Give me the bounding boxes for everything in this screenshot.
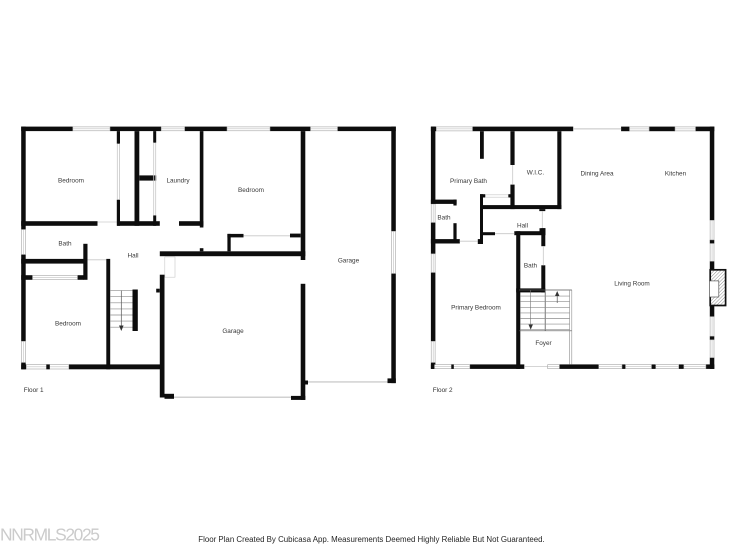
svg-text:Hall: Hall <box>127 253 138 260</box>
svg-text:Bedroom: Bedroom <box>238 187 264 194</box>
svg-text:Hall: Hall <box>517 223 528 230</box>
svg-text:Foyer: Foyer <box>535 340 552 347</box>
svg-text:Bedroom: Bedroom <box>58 178 84 185</box>
svg-text:Floor 1: Floor 1 <box>24 387 44 394</box>
svg-text:Bath: Bath <box>437 215 451 222</box>
svg-text:Laundry: Laundry <box>166 178 190 185</box>
svg-text:W.I.C.: W.I.C. <box>527 170 545 177</box>
svg-text:Dining Area: Dining Area <box>580 171 613 178</box>
svg-text:Floor Plan Created By Cubicasa: Floor Plan Created By Cubicasa App. Meas… <box>198 535 545 544</box>
svg-text:Bedroom: Bedroom <box>55 321 81 328</box>
svg-text:Garage: Garage <box>338 258 360 265</box>
svg-text:Living Room: Living Room <box>614 281 650 288</box>
svg-text:Primary Bedroom: Primary Bedroom <box>451 305 501 312</box>
svg-text:Kitchen: Kitchen <box>665 171 687 178</box>
svg-text:Garage: Garage <box>222 328 244 335</box>
svg-text:Floor 2: Floor 2 <box>433 387 453 394</box>
svg-text:Primary Bath: Primary Bath <box>450 178 487 185</box>
svg-text:NNRMLS2025: NNRMLS2025 <box>0 524 99 544</box>
svg-text:Bath: Bath <box>58 241 72 248</box>
svg-text:Bath: Bath <box>524 262 538 269</box>
